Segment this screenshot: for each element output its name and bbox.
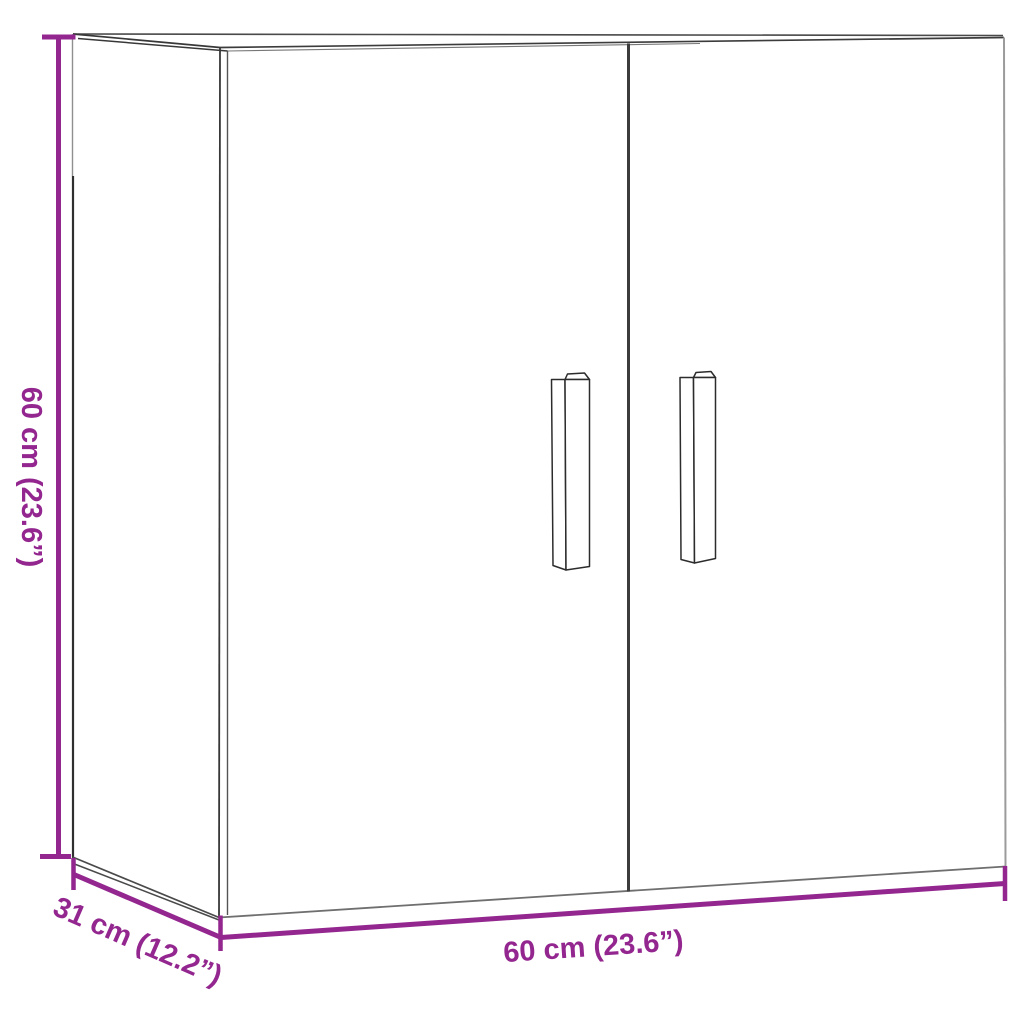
width-dimension-label: 60 cm (23.6”): [502, 925, 684, 969]
height-dimension: 60 cm (23.6”): [15, 37, 76, 857]
cabinet-front-left-edge: [219, 48, 220, 918]
depth-dimension: 31 cm (12.2”): [48, 858, 226, 992]
left-handle-front-face: [565, 380, 590, 571]
cabinet-top-front-edge: [220, 38, 1004, 48]
right-handle-front-face: [694, 378, 716, 564]
right-handle-side-face: [680, 378, 695, 564]
cabinet-front-right-edge: [1004, 38, 1006, 867]
right-handle-top-face: [694, 372, 716, 378]
cabinet-top-left-edge-inner: [78, 39, 228, 52]
left-handle-side-face: [552, 380, 567, 571]
width-dimension: 60 cm (23.6”): [221, 866, 1005, 969]
dimension-diagram-canvas: 60 cm (23.6”) 31 cm (12.2”) 60 cm (23.6”…: [0, 0, 1024, 1024]
wall-cabinet-dimension-diagram: 60 cm (23.6”) 31 cm (12.2”) 60 cm (23.6”…: [0, 0, 1024, 1024]
right-door-handle: [680, 372, 716, 564]
cabinet-top-back-edge: [73, 34, 1003, 36]
depth-dimension-label: 31 cm (12.2”): [48, 891, 226, 992]
cabinet-top-left-edge-outer: [73, 34, 220, 48]
left-door-handle: [552, 373, 590, 570]
left-handle-top-face: [565, 373, 590, 380]
height-dimension-label: 60 cm (23.6”): [15, 387, 47, 568]
cabinet-drawing: [73, 34, 1006, 920]
